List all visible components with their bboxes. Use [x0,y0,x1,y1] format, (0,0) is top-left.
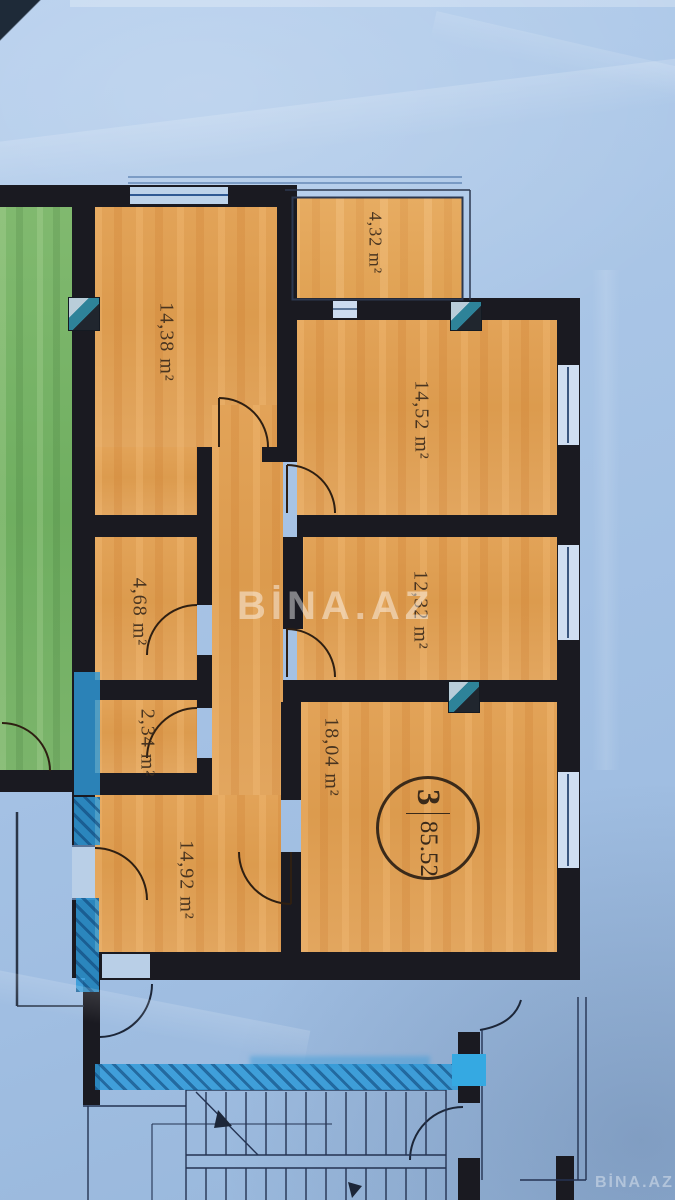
table-corner-shadow [0,0,42,48]
marker-highlight-wall-end [452,1054,486,1086]
marker-highlight-left-wall-3 [76,898,99,992]
room-area-label-18-04: 18,04 m² [320,717,343,797]
badge-divider [406,813,450,814]
vent-shaft-icon [450,301,482,331]
marker-highlight-left-wall [74,672,100,795]
room-area-label-4-68: 4,68 m² [128,578,151,647]
marker-highlight-left-wall-2 [74,797,100,845]
room-area-label-14-38: 14,38 m² [155,302,178,382]
room-area-label-balcony: 4,32 m² [365,212,386,274]
stair-arrow-icon [348,1182,362,1198]
total-area: 85.52 [414,821,442,877]
vent-shaft-icon [68,297,100,331]
stairs [152,1090,446,1200]
floor-plan-photo: 4,32 m² 14,38 m² 14,52 m² 12,32 m² 4,68 … [0,0,675,1200]
marker-smudge [250,1056,430,1068]
unit-info-badge: 3 85.52 [376,776,480,880]
watermark-corner: BİNA.AZ [595,1174,674,1192]
room-area-label-14-52: 14,52 m² [410,380,433,460]
room-area-label-2-34: 2,34 m² [136,709,159,778]
rooms-count: 3 [410,789,447,806]
vent-shaft-icon [448,681,480,713]
room-area-label-14-92: 14,92 m² [175,840,198,920]
survey-lines [128,177,462,183]
shaft-lines [83,997,586,1200]
watermark-center: BİNA.AZ [237,584,434,629]
